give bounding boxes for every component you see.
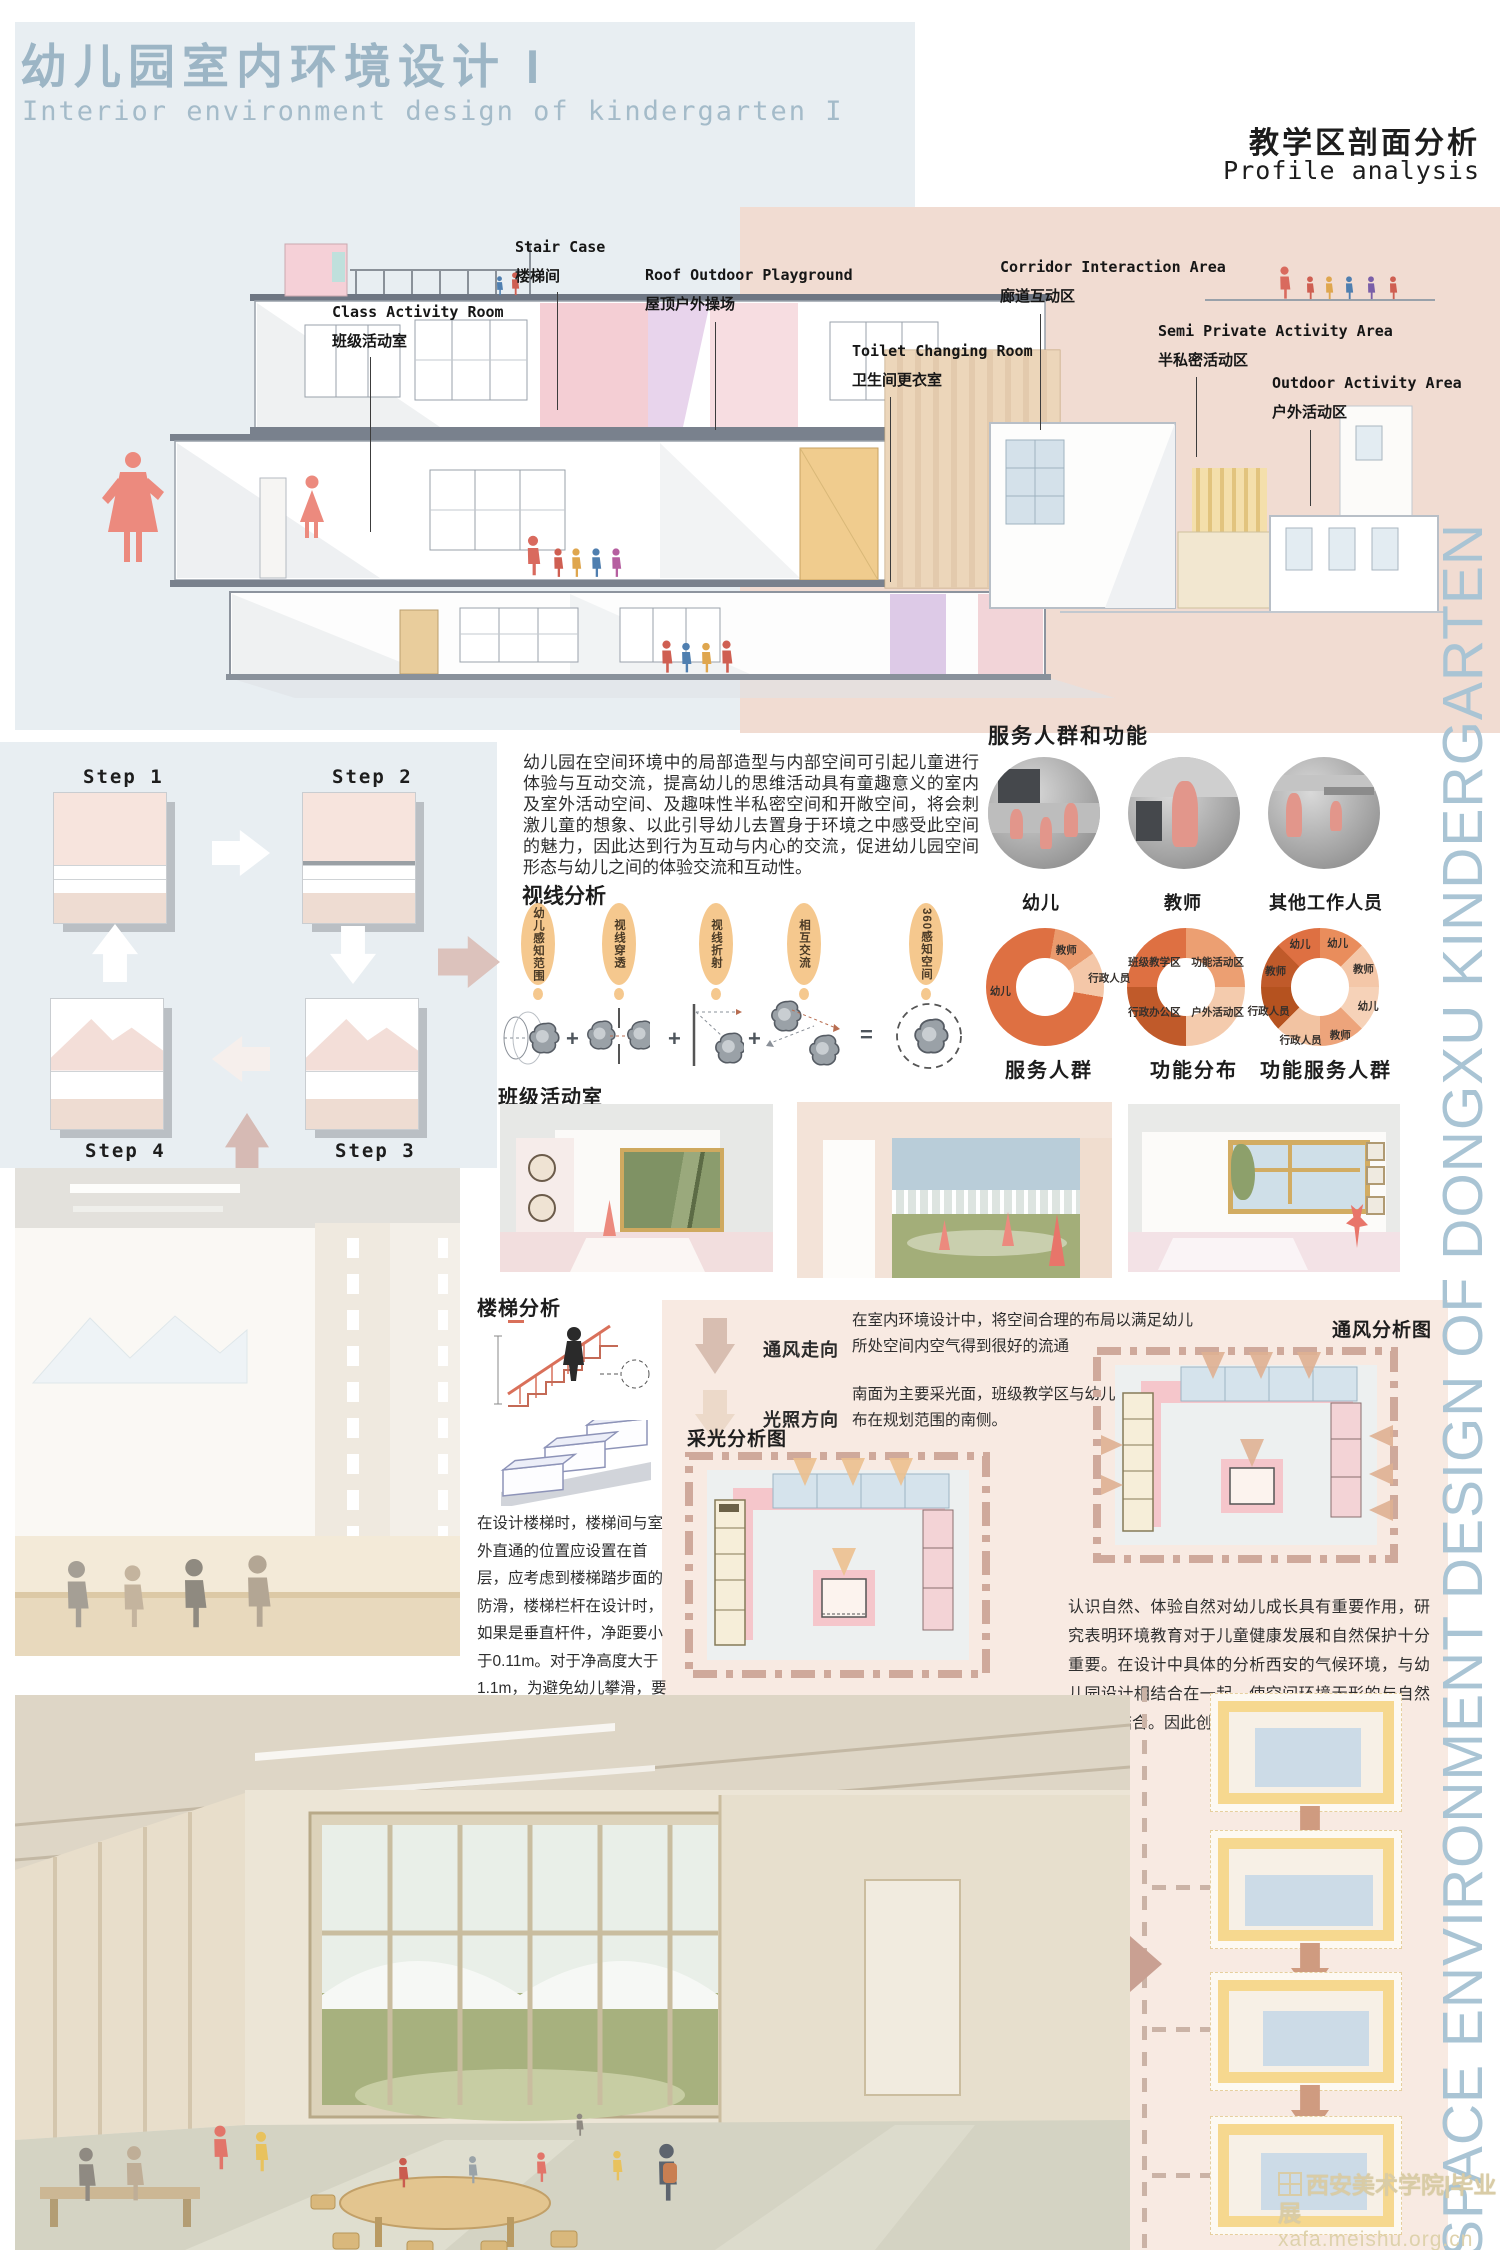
service-section-heading: 服务人群和功能 bbox=[988, 720, 1149, 750]
flow-dashed-connector bbox=[1152, 1885, 1210, 1890]
step2-massing-block bbox=[302, 792, 416, 924]
ventilation-diagram-heading: 通风分析图 bbox=[1240, 1315, 1432, 1342]
donut-segment-label: 行政人员 bbox=[1248, 1003, 1290, 1018]
poster-board: 幼儿园室内环境设计 I Interior environment design … bbox=[0, 0, 1500, 2250]
donut-segment-label: 幼儿 bbox=[1327, 936, 1348, 951]
poster-title-cn: 幼儿园室内环境设计 I bbox=[20, 28, 546, 97]
sight-stage-oval: 360感知空间 bbox=[909, 903, 943, 985]
leader-line bbox=[1196, 377, 1197, 457]
donut-segment-label: 功能活动区 bbox=[1191, 955, 1244, 970]
flow-dashed-connector bbox=[1152, 2173, 1210, 2178]
donut-segment-label: 教师 bbox=[1353, 961, 1374, 976]
donut-caption: 服务人群 bbox=[1005, 1054, 1093, 1083]
classroom-render-art-wall bbox=[500, 1104, 773, 1272]
watermark-seal-icon bbox=[1278, 2172, 1302, 2196]
intro-paragraph: 幼儿园在空间环境中的局部造型与内部空间可引起儿童进行体验与互动交流，提高幼儿的思… bbox=[523, 752, 979, 878]
callout-label-cn: 班级活动室 bbox=[332, 334, 504, 349]
sight-diagram-refraction bbox=[684, 1000, 744, 1072]
leader-line bbox=[370, 357, 371, 532]
flow-card-2 bbox=[1210, 1830, 1402, 1949]
oval-dot-icon bbox=[711, 988, 721, 1000]
donut-segment-label: 幼儿 bbox=[990, 983, 1011, 998]
step3-label: Step 3 bbox=[335, 1140, 416, 1162]
daylight-diagram-heading: 采光分析图 bbox=[687, 1424, 787, 1451]
watermark: 西安美术学院|毕业展 xafa.meishu.org.cn bbox=[1278, 2172, 1500, 2250]
callout-label-cn: 半私密活动区 bbox=[1158, 353, 1393, 368]
legend-label-ventilation: 通风走向 bbox=[763, 1336, 839, 1362]
callout-label-cn: 户外活动区 bbox=[1272, 405, 1462, 420]
sight-diagram-mutual-communication bbox=[766, 998, 840, 1074]
group-label-children: 幼儿 bbox=[1022, 889, 1060, 915]
leader-line bbox=[557, 292, 558, 410]
step1-label: Step 1 bbox=[83, 766, 164, 788]
photo-teacher bbox=[1128, 757, 1240, 869]
callout-label-cn: 屋顶户外操场 bbox=[645, 297, 853, 312]
ventilation-plan-diagram bbox=[1088, 1347, 1403, 1563]
poster-title-en: Interior environment design of kindergar… bbox=[22, 96, 844, 127]
donut-caption: 功能服务人群 bbox=[1260, 1054, 1392, 1083]
donut-segment-label: 幼儿 bbox=[1290, 937, 1311, 952]
donut-segment-label: 班级教学区 bbox=[1128, 955, 1181, 970]
stair-steps-3d-diagram bbox=[483, 1420, 655, 1506]
callout-label-en: Semi Private Activity Area bbox=[1158, 324, 1393, 339]
donut-segment-label: 户外活动区 bbox=[1191, 1004, 1244, 1019]
photo-staff bbox=[1268, 757, 1380, 869]
leader-line bbox=[1310, 430, 1311, 506]
group-label-teacher: 教师 bbox=[1164, 889, 1202, 915]
callout-label-en: Toilet Changing Room bbox=[852, 344, 1033, 359]
callout-label-en: Class Activity Room bbox=[332, 305, 504, 320]
flow-card-3 bbox=[1210, 1972, 1402, 2091]
donut-segment-label: 行政人员 bbox=[1280, 1033, 1322, 1048]
leader-line bbox=[715, 322, 716, 430]
callout-label-cn: 廊道互动区 bbox=[1000, 289, 1226, 304]
sight-diagram-360-space bbox=[891, 998, 967, 1074]
daylight-plan-diagram bbox=[685, 1452, 990, 1678]
callout-label-cn: 楼梯间 bbox=[515, 269, 605, 284]
step3-massing-block bbox=[305, 998, 419, 1130]
donut-chart-function-service: 幼儿教师幼儿教师行政人员行政人员教师幼儿 bbox=[1261, 928, 1379, 1046]
step2-label: Step 2 bbox=[332, 766, 413, 788]
donut-segment-label: 教师 bbox=[1330, 1027, 1351, 1042]
photo-children bbox=[988, 757, 1100, 869]
donut-segment-label: 教师 bbox=[1056, 943, 1077, 958]
donut-segment-label: 行政办公区 bbox=[1128, 1004, 1181, 1019]
callout-roof-outdoor-playground: Roof Outdoor Playground 屋顶户外操场 bbox=[645, 268, 853, 312]
classroom-render-window-wall bbox=[1128, 1104, 1400, 1272]
classroom-render-playground-view bbox=[797, 1102, 1112, 1278]
callout-label-cn: 卫生间更衣室 bbox=[852, 373, 1033, 388]
donut-segment-label: 教师 bbox=[1265, 963, 1286, 978]
sight-stage-oval: 视线穿透 bbox=[602, 903, 636, 985]
callout-toilet-changing-room: Toilet Changing Room 卫生间更衣室 bbox=[852, 344, 1033, 388]
donut-segment-label: 行政人员 bbox=[1088, 970, 1130, 985]
callout-outdoor-activity-area: Outdoor Activity Area 户外活动区 bbox=[1272, 376, 1462, 420]
operator-plus: + bbox=[748, 1026, 761, 1052]
donut-chart-function-distribution: 功能活动区户外活动区行政办公区班级教学区 bbox=[1127, 928, 1245, 1046]
stair-safety-diagram bbox=[488, 1316, 656, 1414]
stairwell-render bbox=[15, 1168, 460, 1656]
flow-dashed-connector bbox=[1152, 2027, 1210, 2032]
oval-dot-icon bbox=[533, 988, 543, 1000]
callout-stair-case: Stair Case 楼梯间 bbox=[515, 240, 605, 284]
ventilation-arrow-icon bbox=[695, 1318, 735, 1376]
step4-label: Step 4 bbox=[85, 1140, 166, 1162]
callout-label-en: Outdoor Activity Area bbox=[1272, 376, 1462, 391]
callout-label-en: Stair Case bbox=[515, 240, 605, 255]
donut-caption: 功能分布 bbox=[1150, 1054, 1238, 1083]
step1-massing-block bbox=[53, 792, 167, 924]
leader-line bbox=[1040, 314, 1041, 430]
watermark-line2: xafa.meishu.org.cn bbox=[1278, 2227, 1500, 2250]
watermark-line1: 西安美术学院|毕业展 bbox=[1278, 2172, 1496, 2226]
profile-analysis-heading-en: Profile analysis bbox=[1150, 156, 1480, 185]
sight-diagram-perception-range bbox=[502, 1002, 562, 1072]
flow-card-1 bbox=[1210, 1693, 1402, 1812]
sight-diagram-penetration bbox=[586, 1002, 650, 1072]
callout-label-en: Corridor Interaction Area bbox=[1000, 260, 1226, 275]
callout-class-activity-room: Class Activity Room 班级活动室 bbox=[332, 305, 504, 349]
leader-line bbox=[890, 397, 891, 582]
operator-plus: + bbox=[566, 1026, 579, 1052]
operator-plus: + bbox=[668, 1026, 681, 1052]
sight-stage-oval: 相互交流 bbox=[787, 903, 821, 985]
callout-label-en: Roof Outdoor Playground bbox=[645, 268, 853, 283]
operator-equals: = bbox=[860, 1022, 873, 1048]
donut-chart-service-population: 教师行政人员幼儿 bbox=[986, 928, 1104, 1046]
classroom-interior-render bbox=[15, 1695, 1130, 2250]
side-vertical-text: SPACE ENVIRONMENT DESIGN OF DONGXU KINDE… bbox=[1430, 886, 1496, 2250]
callout-corridor-interaction-area: Corridor Interaction Area 廊道互动区 bbox=[1000, 260, 1226, 304]
oval-dot-icon bbox=[614, 988, 624, 1000]
donut-segment-label: 幼儿 bbox=[1358, 999, 1379, 1014]
callout-semi-private-activity-area: Semi Private Activity Area 半私密活动区 bbox=[1158, 324, 1393, 368]
sight-stage-oval: 视线折射 bbox=[699, 903, 733, 985]
sight-stage-oval: 幼儿感知范围 bbox=[521, 903, 555, 985]
group-label-staff: 其他工作人员 bbox=[1269, 889, 1383, 915]
step4-massing-block bbox=[50, 998, 164, 1130]
